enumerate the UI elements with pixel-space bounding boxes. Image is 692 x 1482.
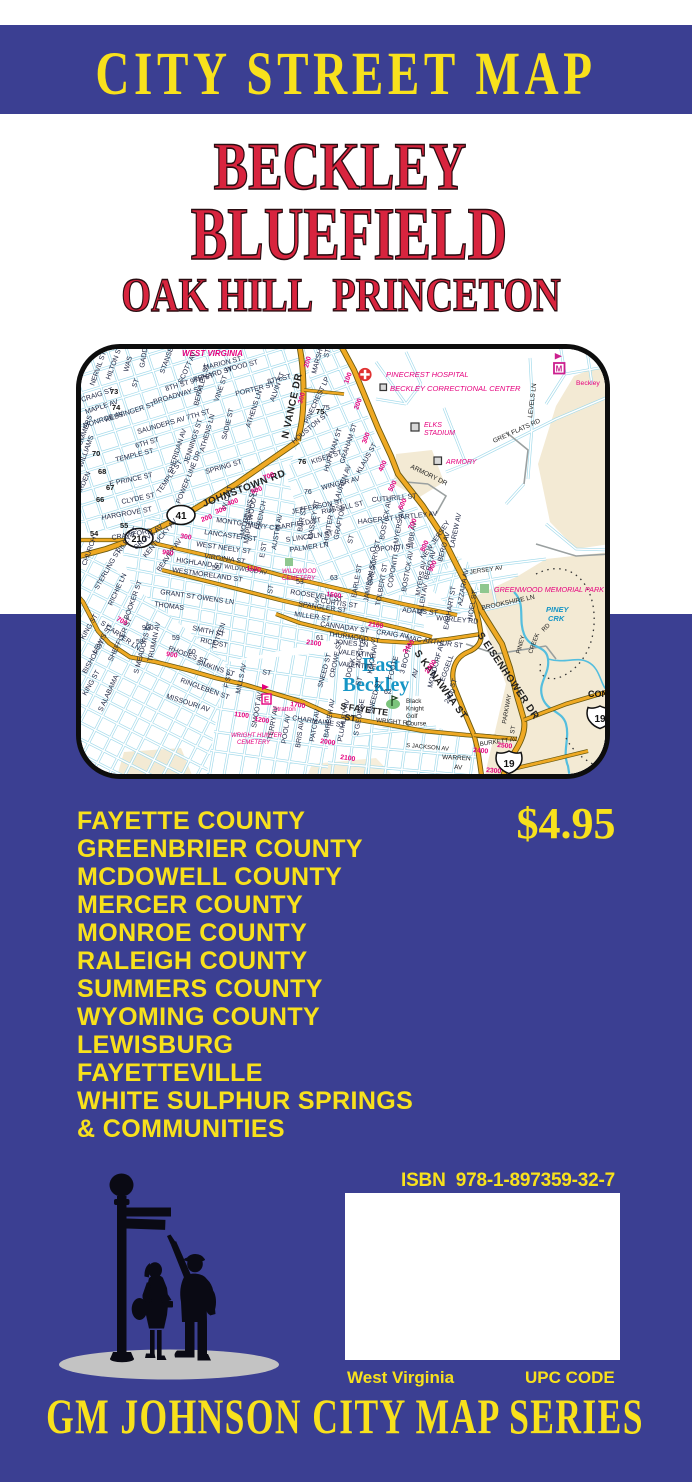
svg-text:2500: 2500 (497, 742, 513, 750)
svg-text:76: 76 (298, 457, 306, 466)
svg-text:GREENWOOD MEMORIAL PARK: GREENWOOD MEMORIAL PARK (494, 585, 605, 594)
svg-text:900: 900 (142, 625, 154, 632)
svg-text:62: 62 (384, 689, 392, 696)
svg-text:74: 74 (112, 403, 121, 412)
svg-text:STADIUM: STADIUM (424, 430, 455, 437)
svg-text:CRK: CRK (548, 614, 565, 623)
svg-text:CON: CON (588, 689, 605, 699)
svg-text:73: 73 (110, 387, 118, 396)
svg-text:63: 63 (330, 575, 338, 582)
svg-text:2400: 2400 (473, 747, 489, 755)
svg-text:M: M (556, 365, 563, 374)
svg-text:AV: AV (454, 764, 463, 771)
svg-text:66: 66 (96, 495, 104, 504)
svg-text:58: 58 (136, 639, 144, 646)
svg-text:CEMETERY: CEMETERY (237, 740, 271, 746)
svg-text:60: 60 (188, 649, 196, 656)
svg-text:Knight: Knight (406, 706, 424, 713)
svg-text:76: 76 (304, 489, 312, 496)
svg-text:Black: Black (406, 698, 422, 705)
svg-text:WILDWOOD: WILDWOOD (282, 569, 317, 575)
svg-text:BECKLEY CORRECTIONAL CENTER: BECKLEY CORRECTIONAL CENTER (390, 384, 521, 393)
svg-text:41: 41 (175, 511, 187, 522)
svg-text:56: 56 (212, 565, 220, 572)
svg-text:ELKS: ELKS (424, 422, 442, 429)
svg-text:19: 19 (594, 714, 605, 725)
svg-text:68: 68 (98, 467, 106, 476)
svg-text:70: 70 (92, 449, 100, 458)
svg-text:59: 59 (172, 635, 180, 642)
svg-text:PINECREST HOSPITAL: PINECREST HOSPITAL (386, 370, 469, 379)
svg-text:PINEY: PINEY (546, 605, 570, 614)
svg-text:75: 75 (316, 407, 324, 416)
svg-text:E: E (264, 696, 270, 705)
svg-text:67: 67 (106, 483, 114, 492)
svg-text:53: 53 (296, 579, 304, 586)
svg-text:55: 55 (120, 521, 128, 530)
svg-text:ARMORY: ARMORY (445, 459, 478, 466)
svg-text:2300: 2300 (486, 767, 502, 774)
svg-text:ST: ST (509, 725, 517, 734)
svg-text:19: 19 (503, 759, 515, 770)
svg-text:54: 54 (90, 529, 99, 538)
svg-text:Beckley: Beckley (576, 380, 600, 387)
